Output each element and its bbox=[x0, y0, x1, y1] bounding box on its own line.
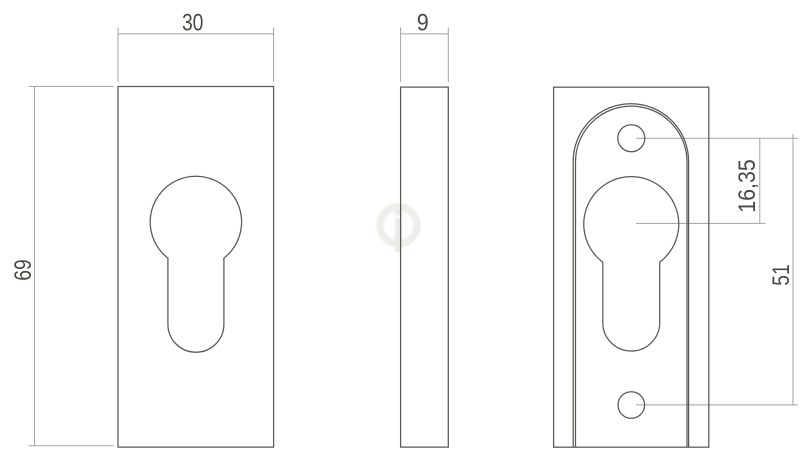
svg-text:51: 51 bbox=[768, 264, 795, 285]
svg-text:69: 69 bbox=[10, 259, 37, 280]
svg-text:30: 30 bbox=[182, 10, 204, 37]
svg-text:16,35: 16,35 bbox=[734, 159, 761, 213]
svg-text:9: 9 bbox=[417, 10, 429, 37]
